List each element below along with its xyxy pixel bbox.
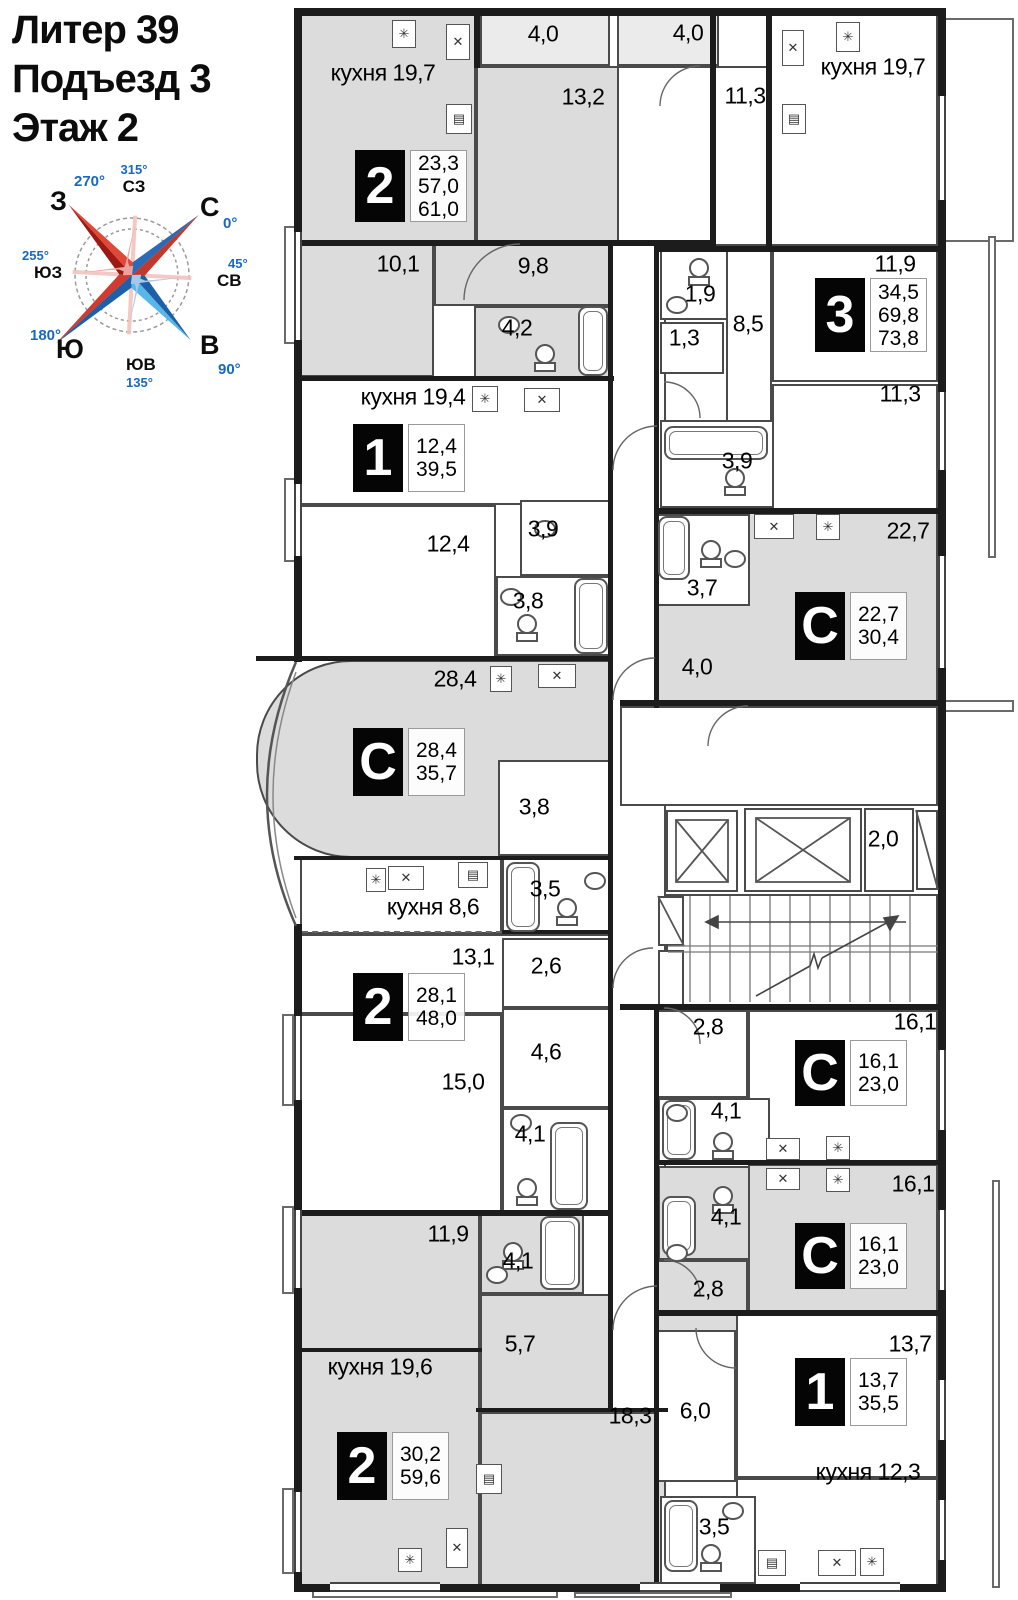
room-area-label: 13,7 [889, 1331, 932, 1358]
apartment-type: 1 [353, 424, 403, 492]
kitchen-sink-icon: ✕ [754, 514, 794, 539]
apartment-areas: 23,3 57,0 61,0 [410, 150, 467, 222]
kitchen-sink-icon: ✕ [818, 1550, 856, 1576]
room-area-label: 13,1 [452, 944, 495, 971]
room-area-label: 3,7 [687, 575, 717, 602]
sink-icon [666, 1244, 688, 1262]
room-area-label: 4,1 [515, 1121, 545, 1148]
room-area-label: 3,8 [513, 588, 543, 615]
room-area-label: 1,9 [685, 281, 715, 308]
apartment-type: С [795, 1040, 845, 1106]
kitchen-label: кухня 12,3 [816, 1459, 921, 1486]
room-area-label: 22,7 [887, 518, 930, 545]
room-area-label: 3,5 [530, 876, 560, 903]
room-area-label: 9,8 [518, 253, 548, 280]
room-area-label: 6,0 [680, 1398, 710, 1425]
toilet-icon [700, 540, 722, 570]
boiler-icon: ✳ [826, 1168, 850, 1192]
apartment-areas: 13,7 35,5 [850, 1358, 907, 1426]
kitchen-sink-icon: ✕ [766, 1168, 800, 1190]
room-area-label: 3,8 [519, 794, 549, 821]
room-area-label: 4,1 [503, 1248, 533, 1275]
boiler-icon: ✳ [472, 386, 498, 412]
room-area-label: 3,9 [722, 448, 752, 475]
room-area-label: 2,8 [693, 1276, 723, 1303]
apartment-areas: 22,7 30,4 [850, 592, 907, 660]
apartment-areas: 34,5 69,8 73,8 [870, 278, 927, 352]
apartment-badge-studio-30: С 22,7 30,4 [795, 592, 907, 660]
toilet-icon [700, 1544, 722, 1574]
apartment-badge-2room-61: 2 23,3 57,0 61,0 [355, 150, 467, 222]
kitchen-sink-icon: ✕ [782, 30, 804, 66]
room-area-label: 3,9 [528, 516, 558, 543]
apartment-type: 2 [337, 1432, 387, 1500]
room-area-label: 4,2 [502, 315, 532, 342]
room-area-label: 4,1 [711, 1204, 741, 1231]
room-area-label: 2,0 [868, 826, 898, 853]
bathtub-icon [664, 1500, 698, 1572]
kitchen-sink-icon: ✕ [538, 664, 576, 688]
toilet-icon [712, 1132, 734, 1162]
room-area-label: 5,7 [505, 1331, 535, 1358]
kitchen-label: кухня 19,6 [328, 1354, 433, 1381]
toilet-icon [516, 1178, 538, 1208]
room-area-label: 4,0 [682, 654, 712, 681]
toilet-icon [516, 614, 538, 644]
room-area-label: 16,1 [892, 1171, 935, 1198]
room-area-label: 18,3 [609, 1403, 652, 1430]
kitchen-sink-icon: ✕ [388, 866, 424, 890]
bathtub-icon [574, 578, 608, 654]
apartment-areas: 28,1 48,0 [408, 973, 465, 1041]
boiler-icon: ✳ [826, 1136, 850, 1160]
sink-icon [666, 1104, 688, 1122]
apartment-type: С [353, 728, 403, 796]
apartment-type: 1 [795, 1358, 845, 1426]
boiler-icon: ✳ [836, 22, 860, 52]
stair-treads [668, 896, 938, 1002]
apartment-type: С [795, 1223, 845, 1289]
stove-icon: ▤ [446, 104, 472, 134]
stove-icon: ▤ [758, 1550, 786, 1576]
room-area-label: 10,1 [377, 251, 420, 278]
sink-icon [724, 550, 746, 568]
room-area-label: 12,4 [427, 531, 470, 558]
boiler-icon: ✳ [860, 1548, 884, 1576]
room-area-label: 2,6 [531, 953, 561, 980]
apartment-areas: 28,4 35,7 [408, 728, 465, 796]
room-area-label: 11,9 [874, 251, 915, 278]
apartment-areas: 12,4 39,5 [408, 424, 465, 492]
apartment-badge-3room-73: 3 34,5 69,8 73,8 [815, 278, 927, 352]
toilet-icon [534, 344, 556, 374]
apartment-type: 3 [815, 278, 865, 352]
room-area-label: 1,3 [669, 325, 699, 352]
apartment-areas: 16,1 23,0 [850, 1040, 907, 1106]
room-area-label: 11,3 [724, 83, 765, 110]
room-area-label: 4,0 [528, 21, 558, 48]
room-area-label: 4,1 [711, 1098, 741, 1125]
apartment-type: 2 [355, 150, 405, 222]
room-area-label: 4,0 [673, 20, 703, 47]
apartment-badge-studio-35: С 28,4 35,7 [353, 728, 465, 796]
boiler-icon: ✳ [398, 1548, 422, 1572]
sink-icon [584, 872, 606, 890]
stove-icon: ▤ [782, 104, 806, 134]
room-area-label: 11,3 [879, 381, 920, 408]
boiler-icon: ✳ [490, 666, 512, 692]
boiler-icon: ✳ [816, 514, 840, 540]
kitchen-label: кухня 19,7 [331, 60, 436, 87]
room-area-label: 15,0 [442, 1069, 485, 1096]
room-area-label: 4,6 [531, 1039, 561, 1066]
kitchen-sink-icon: ✕ [446, 1528, 468, 1568]
apartment-badge-studio-23-lower: С 16,1 23,0 [795, 1223, 907, 1289]
apartment-badge-2room-48: 2 28,1 48,0 [353, 973, 465, 1041]
kitchen-label: кухня 8,6 [387, 894, 479, 921]
apartment-areas: 16,1 23,0 [850, 1223, 907, 1289]
floor-plan-page: { "header": {"line1": "Литер 39", "line2… [0, 0, 1018, 1600]
apartment-areas: 30,2 59,6 [392, 1432, 449, 1500]
bathtub-icon [658, 516, 690, 580]
stove-icon: ▤ [476, 1464, 502, 1494]
apartment-badge-studio-23-upper: С 16,1 23,0 [795, 1040, 907, 1106]
bay-window-inner-curve [273, 672, 296, 918]
room-area-label: 13,2 [562, 84, 605, 111]
bathtub-icon [540, 1216, 580, 1290]
room-area-label: 8,5 [733, 311, 763, 338]
bathtub-icon [550, 1122, 588, 1210]
kitchen-label: кухня 19,7 [821, 54, 926, 81]
room-area-label: 3,5 [699, 1514, 729, 1541]
room-area-label: 28,4 [434, 666, 477, 693]
bathtub-icon [578, 306, 608, 376]
room-area-label: 16,1 [894, 1009, 937, 1036]
apartment-badge-2room-59: 2 30,2 59,6 [337, 1432, 449, 1500]
apartment-type: 2 [353, 973, 403, 1041]
room-area-label: 11,9 [427, 1221, 468, 1248]
stove-icon: ▤ [458, 862, 488, 888]
boiler-icon: ✳ [366, 868, 386, 892]
toilet-icon [556, 898, 578, 928]
apartment-type: С [795, 592, 845, 660]
room-area-label: 2,8 [693, 1014, 723, 1041]
apartment-badge-1room-35: 1 13,7 35,5 [795, 1358, 907, 1426]
boiler-icon: ✳ [392, 20, 416, 48]
bay-window-outer-curve [267, 662, 296, 926]
apartment-badge-1room-39: 1 12,4 39,5 [353, 424, 465, 492]
kitchen-sink-icon: ✕ [766, 1138, 800, 1160]
stair-direction-arrow [706, 916, 906, 996]
kitchen-sink-icon: ✕ [524, 388, 560, 412]
bathtub-icon [664, 426, 768, 460]
kitchen-label: кухня 19,4 [361, 384, 466, 411]
kitchen-sink-icon: ✕ [446, 24, 470, 60]
